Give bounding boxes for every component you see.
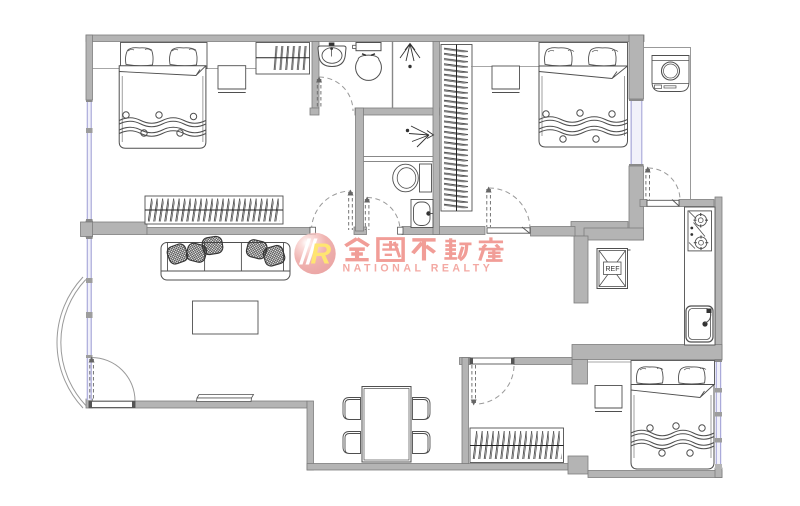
svg-text:NATIONAL REALTY: NATIONAL REALTY xyxy=(343,263,494,275)
svg-text:REF: REF xyxy=(606,266,620,273)
svg-text:R: R xyxy=(311,239,332,271)
